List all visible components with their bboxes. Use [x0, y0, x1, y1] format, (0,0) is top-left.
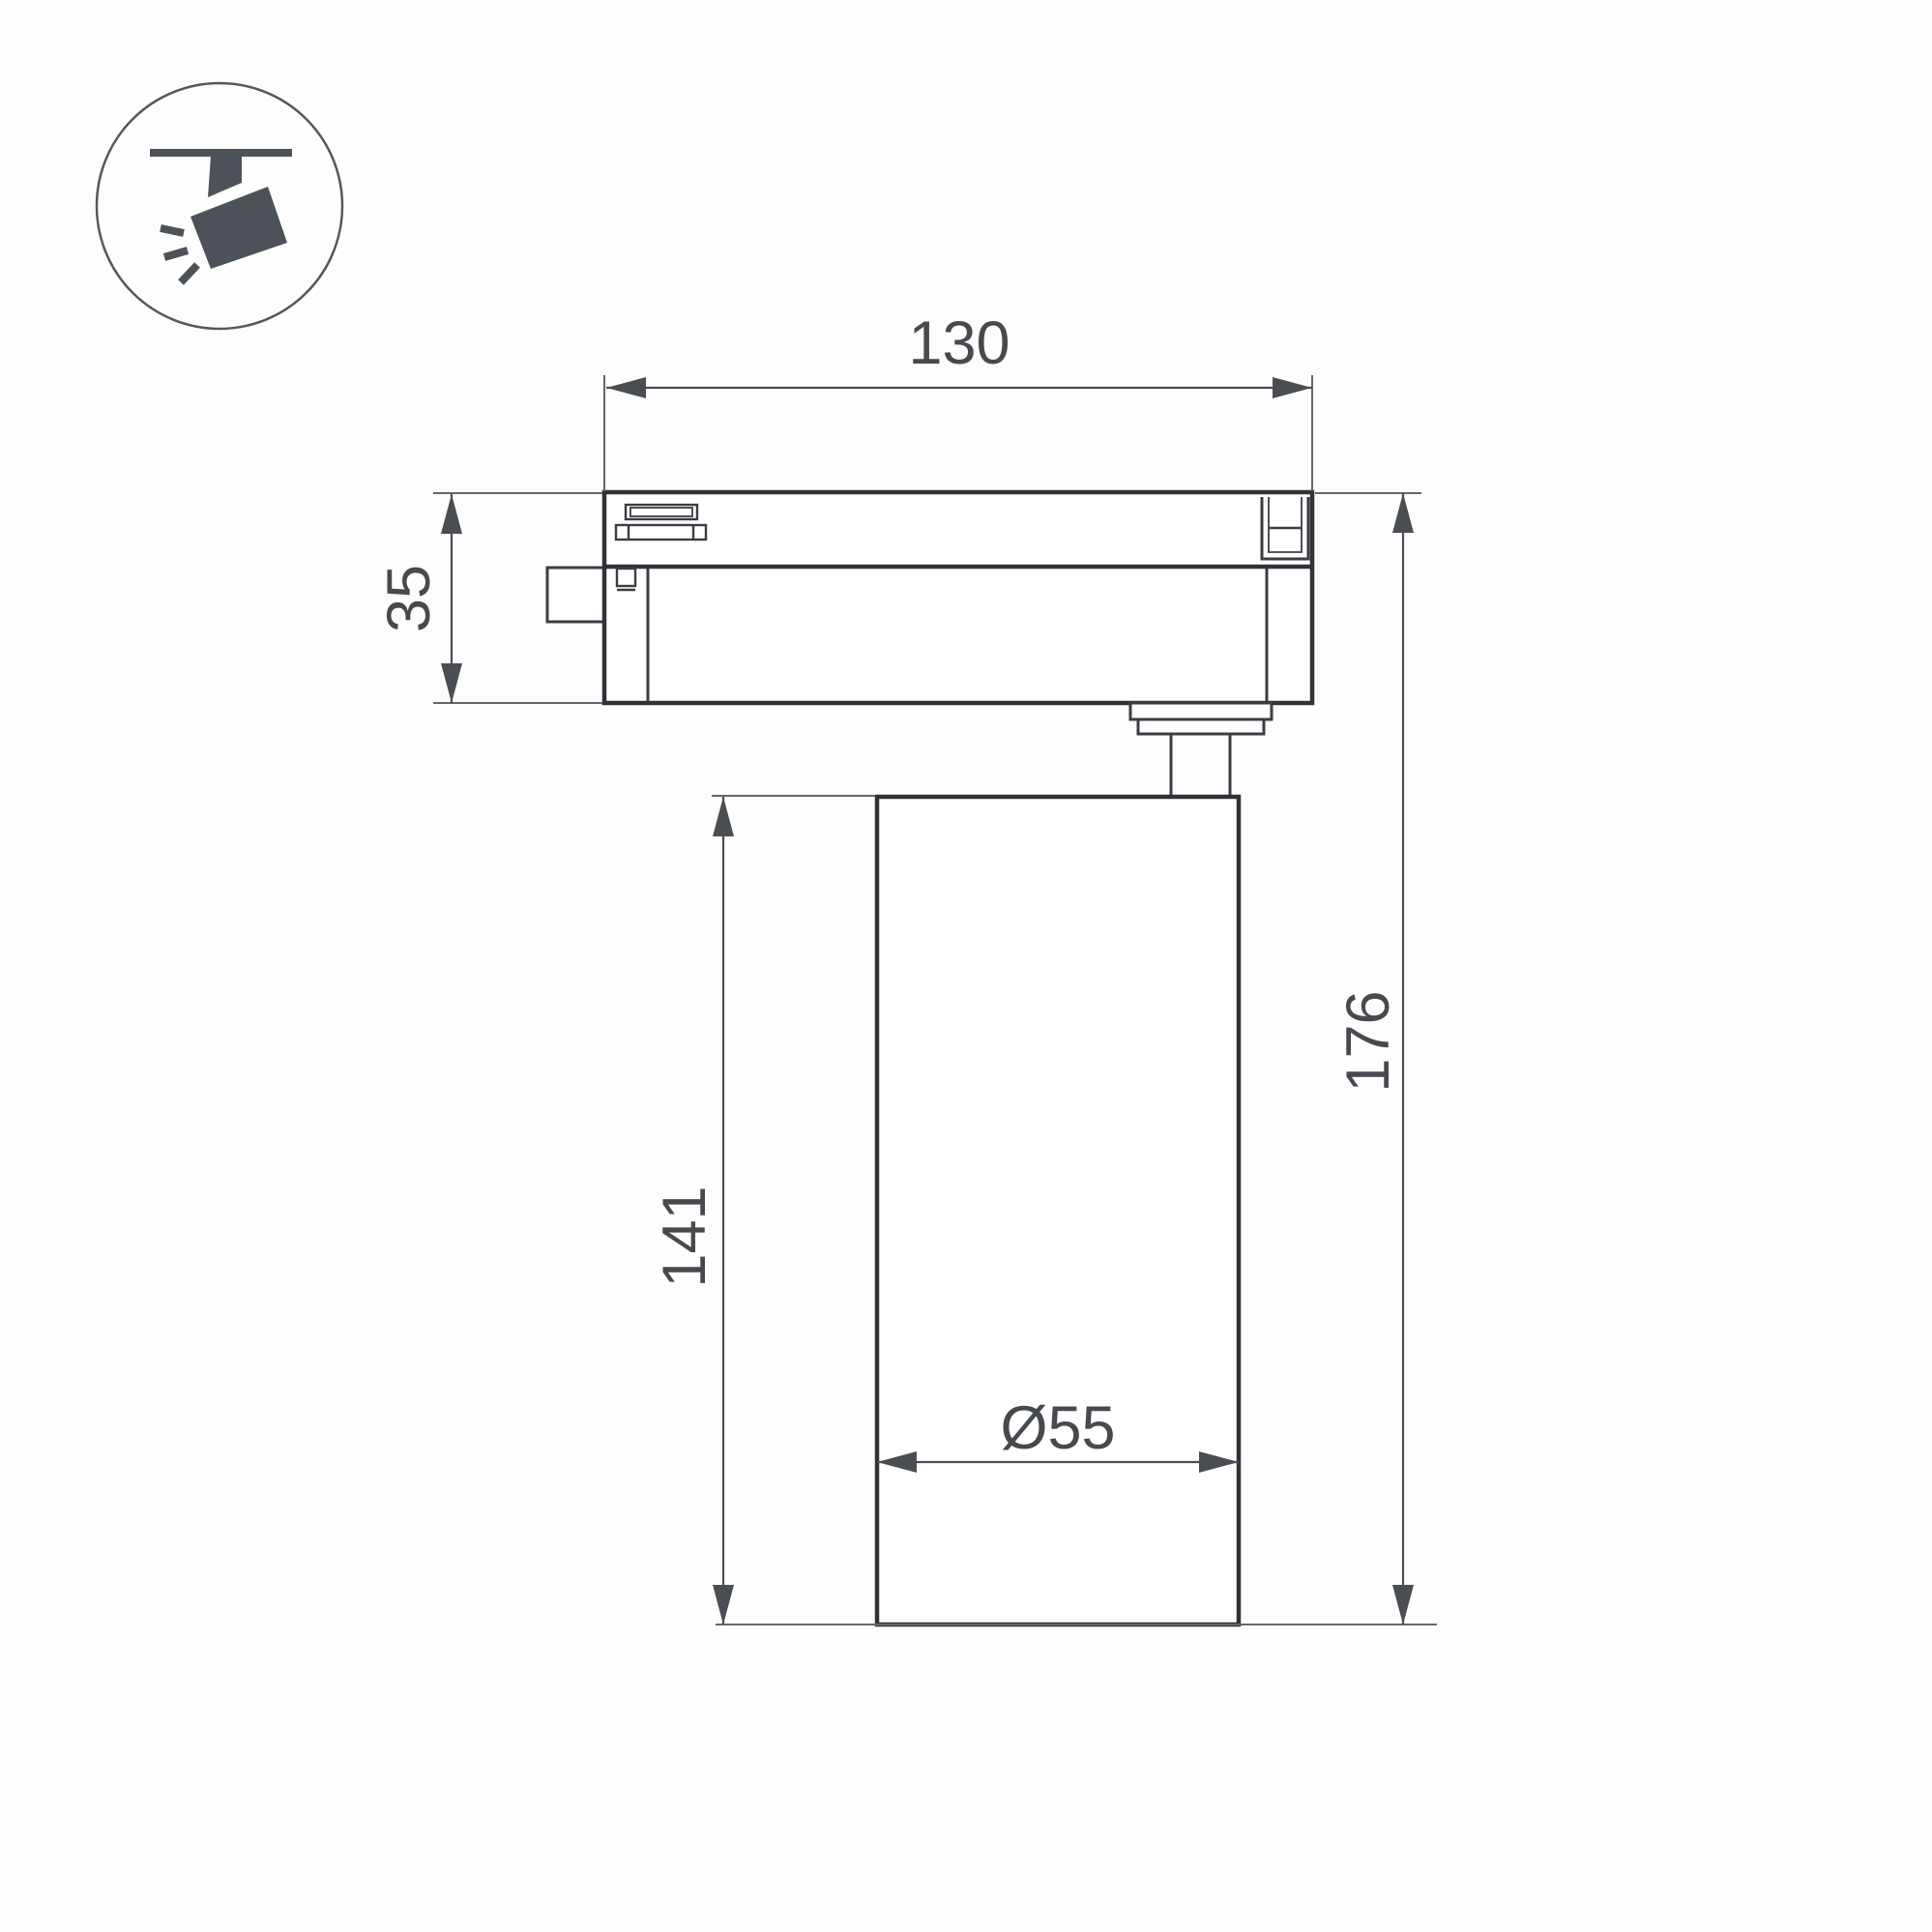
dim-arrow-141-top: [713, 797, 734, 836]
dim-arrow-141-bottom: [713, 1585, 734, 1625]
dim-arrow-176-top: [1392, 493, 1414, 533]
pivot-flange-lower: [1138, 719, 1264, 734]
dim-label-130: 130: [908, 309, 1010, 377]
dimension-body-height: 141: [651, 797, 734, 1625]
dimension-adapter-height: 35: [375, 494, 462, 703]
dim-arrow-35-top: [441, 494, 462, 534]
adapter-body: [604, 492, 1312, 703]
dim-arrow-130-right: [1273, 377, 1312, 398]
icon-ray-1: [161, 228, 184, 233]
dimension-drawing-svg: 130 35 141 176 Ø55: [0, 0, 1932, 1932]
adapter-latch: [617, 569, 635, 586]
pivot-flange-upper: [1130, 703, 1272, 719]
dim-arrow-176-bottom: [1392, 1585, 1414, 1625]
track-spotlight-icon: [97, 83, 342, 329]
icon-track-bar: [150, 149, 292, 157]
dim-label-176: 176: [1334, 990, 1402, 1092]
lamp-cylinder-body: [877, 797, 1239, 1625]
dim-label-35: 35: [375, 565, 443, 632]
dim-label-141: 141: [651, 1186, 718, 1287]
pivot-assembly: [1130, 703, 1272, 797]
dimension-adapter-width: 130: [606, 309, 1312, 398]
drawing-canvas: 130 35 141 176 Ø55: [0, 0, 1932, 1932]
dim-arrow-35-bottom: [441, 663, 462, 703]
track-adapter-outline: [547, 492, 1312, 703]
dimension-overall-height: 176: [1334, 493, 1414, 1625]
dim-label-d55: Ø55: [1000, 1394, 1115, 1462]
dim-arrow-130-left: [606, 377, 646, 398]
